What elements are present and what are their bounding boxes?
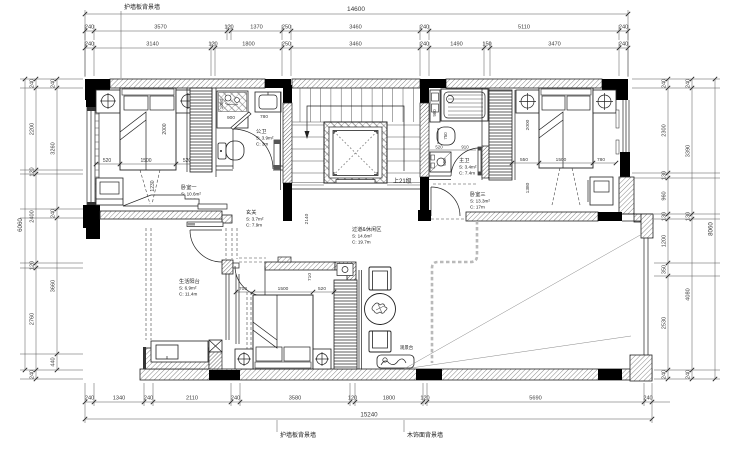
svg-text:1490: 1490: [450, 42, 462, 48]
svg-text:240: 240: [420, 42, 429, 48]
svg-text:120: 120: [30, 261, 36, 270]
svg-text:S: 14.6m²: S: 14.6m²: [352, 234, 372, 239]
svg-text:C: 3m: C: 3m: [256, 142, 268, 147]
svg-text:240: 240: [643, 396, 652, 402]
svg-text:240: 240: [619, 25, 628, 31]
svg-text:C: 17m: C: 17m: [470, 205, 485, 210]
svg-text:3140: 3140: [146, 42, 158, 48]
svg-text:护墙板背景墙: 护墙板背景墙: [124, 3, 160, 11]
svg-text:1500: 1500: [278, 286, 289, 292]
svg-text:2530: 2530: [662, 317, 668, 329]
svg-text:8060: 8060: [708, 222, 715, 236]
svg-text:玄关: 玄关: [246, 208, 256, 216]
svg-text:2000: 2000: [525, 119, 531, 130]
svg-text:130: 130: [686, 212, 692, 221]
svg-text:240: 240: [686, 370, 692, 379]
svg-text:120: 120: [224, 25, 233, 31]
svg-text:900: 900: [227, 115, 235, 121]
svg-text:120: 120: [420, 396, 429, 402]
svg-text:1340: 1340: [113, 396, 125, 402]
svg-text:护墙板背景墙: 护墙板背景墙: [280, 431, 316, 439]
svg-text:240: 240: [51, 79, 57, 88]
svg-text:1500: 1500: [140, 158, 151, 164]
svg-text:S: 13.3m²: S: 13.3m²: [470, 199, 490, 204]
svg-text:240: 240: [619, 42, 628, 48]
svg-text:2400: 2400: [30, 210, 36, 222]
svg-text:14600: 14600: [347, 6, 365, 13]
svg-text:1080: 1080: [219, 98, 225, 109]
svg-text:120: 120: [348, 396, 357, 402]
svg-text:卧室三: 卧室三: [470, 190, 486, 198]
svg-text:主卫: 主卫: [459, 156, 469, 164]
svg-text:6060: 6060: [17, 218, 24, 232]
svg-text:130: 130: [662, 171, 668, 180]
svg-text:600: 600: [442, 158, 447, 166]
svg-text:4080: 4080: [686, 288, 692, 300]
svg-text:2760: 2760: [30, 313, 36, 325]
svg-text:240: 240: [85, 396, 94, 402]
svg-text:3390: 3390: [686, 145, 692, 157]
svg-text:公卫: 公卫: [256, 128, 266, 135]
svg-text:2300: 2300: [662, 124, 668, 136]
svg-text:520: 520: [318, 286, 326, 292]
svg-text:700: 700: [239, 286, 247, 292]
svg-text:120: 120: [208, 42, 217, 48]
svg-text:710: 710: [307, 273, 313, 281]
svg-text:S: 6.9m²: S: 6.9m²: [179, 286, 197, 291]
svg-text:350: 350: [662, 265, 668, 274]
svg-text:910: 910: [461, 145, 469, 150]
svg-text:上21级: 上21级: [393, 177, 412, 185]
svg-text:3570: 3570: [154, 25, 166, 31]
svg-text:240: 240: [420, 25, 429, 31]
svg-text:卧室一: 卧室一: [181, 183, 197, 191]
svg-text:1500: 1500: [556, 157, 567, 163]
svg-text:240: 240: [51, 209, 57, 218]
svg-text:C: 11.4m: C: 11.4m: [179, 292, 197, 297]
svg-text:2200: 2200: [30, 123, 36, 135]
svg-text:240: 240: [662, 370, 668, 379]
svg-text:240: 240: [662, 79, 668, 88]
svg-text:1800: 1800: [383, 396, 395, 402]
svg-text:C: 19.7m: C: 19.7m: [352, 240, 371, 245]
svg-text:240: 240: [686, 79, 692, 88]
svg-text:780: 780: [260, 114, 268, 120]
svg-text:240: 240: [30, 79, 36, 88]
svg-text:3260: 3260: [51, 142, 57, 154]
svg-text:2000: 2000: [162, 123, 168, 134]
svg-text:3660: 3660: [51, 280, 57, 292]
svg-text:240: 240: [30, 370, 36, 379]
svg-text:980: 980: [432, 109, 437, 117]
svg-text:观景台: 观景台: [400, 344, 414, 351]
svg-text:960: 960: [662, 191, 668, 200]
svg-text:5690: 5690: [529, 396, 541, 402]
svg-text:550: 550: [520, 157, 528, 163]
svg-text:过道&休闲区: 过道&休闲区: [352, 225, 381, 233]
svg-text:240: 240: [85, 42, 94, 48]
svg-text:780: 780: [597, 157, 605, 163]
svg-text:3460: 3460: [349, 42, 361, 48]
svg-text:2140: 2140: [304, 213, 310, 224]
svg-text:15240: 15240: [360, 412, 378, 419]
svg-text:3460: 3460: [349, 25, 361, 31]
svg-text:120: 120: [30, 167, 36, 176]
svg-text:生活阳台: 生活阳台: [179, 277, 200, 285]
svg-text:1370: 1370: [250, 25, 262, 31]
svg-text:250: 250: [282, 25, 291, 31]
svg-text:240: 240: [231, 396, 240, 402]
svg-text:2110: 2110: [186, 396, 198, 402]
svg-text:240: 240: [144, 396, 153, 402]
svg-text:5110: 5110: [518, 25, 530, 31]
svg-text:1800: 1800: [242, 42, 254, 48]
svg-text:750: 750: [443, 132, 448, 140]
svg-text:S: 3.4m²: S: 3.4m²: [459, 165, 477, 170]
svg-text:250: 250: [282, 42, 291, 48]
svg-text:150: 150: [482, 42, 491, 48]
svg-text:3580: 3580: [289, 396, 301, 402]
svg-text:C: 7.4m: C: 7.4m: [459, 171, 475, 176]
svg-text:S: 3.7m²: S: 3.7m²: [246, 217, 264, 222]
svg-text:1200: 1200: [662, 235, 668, 247]
svg-text:木饰面背景墙: 木饰面背景墙: [407, 431, 443, 439]
svg-text:1380: 1380: [525, 182, 531, 193]
svg-text:440: 440: [51, 357, 57, 366]
svg-text:520: 520: [435, 145, 443, 150]
svg-text:130: 130: [662, 212, 668, 221]
svg-text:240: 240: [85, 25, 94, 31]
svg-text:520: 520: [103, 158, 112, 164]
svg-text:3470: 3470: [548, 42, 560, 48]
svg-text:C: 7.9m: C: 7.9m: [246, 223, 262, 228]
